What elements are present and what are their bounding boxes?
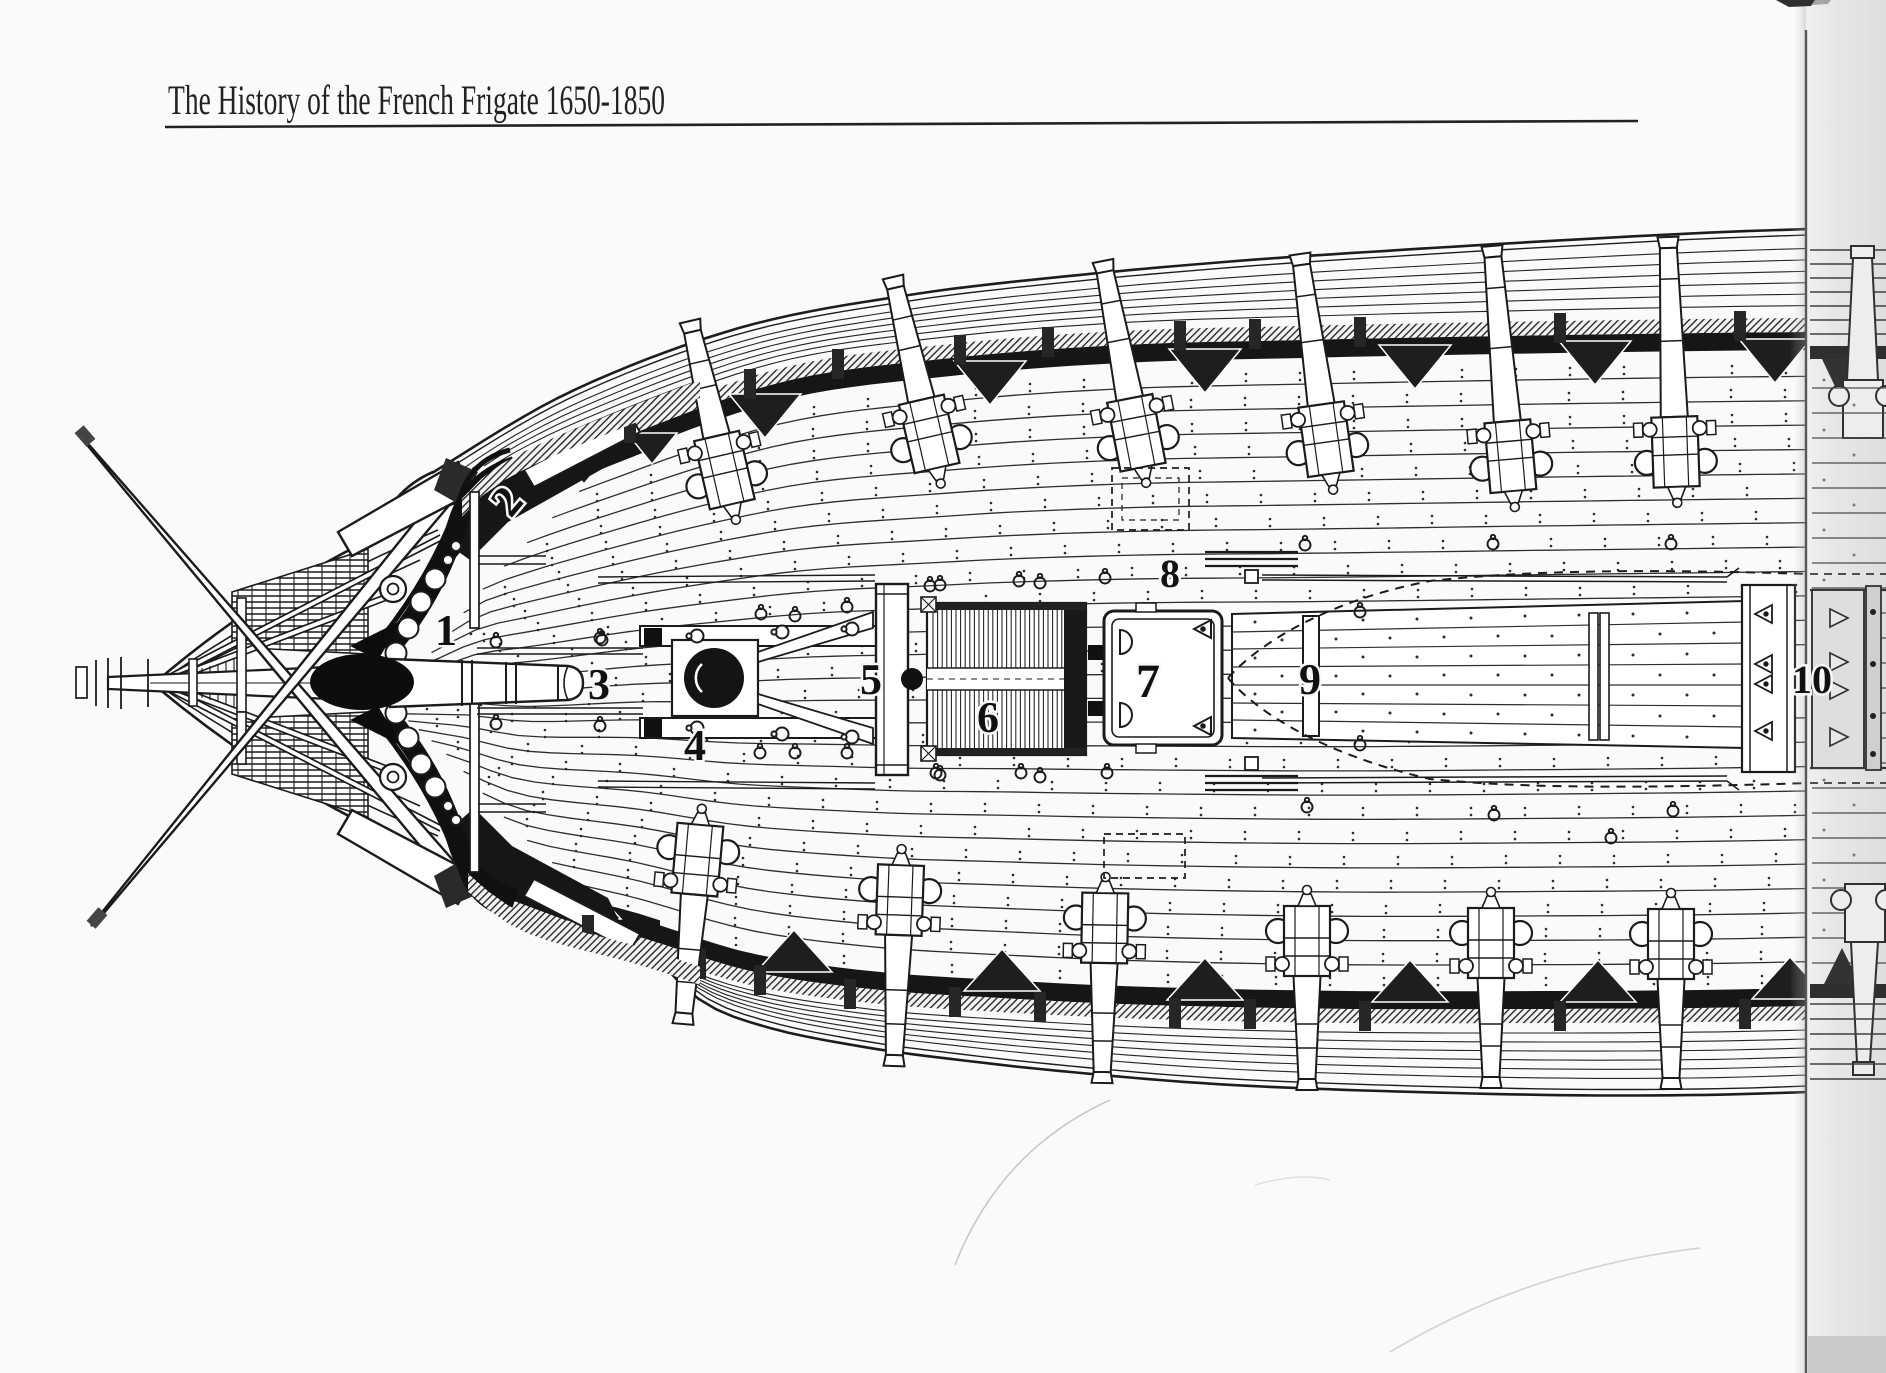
svg-text:8: 8 — [1160, 551, 1180, 596]
svg-text:7: 7 — [1136, 655, 1160, 708]
svg-text:3: 3 — [588, 660, 610, 709]
svg-text:4: 4 — [684, 721, 706, 770]
svg-text:6: 6 — [977, 693, 999, 742]
svg-text:1: 1 — [435, 606, 457, 655]
svg-text:10: 10 — [1792, 657, 1832, 702]
svg-text:The History of the French Frig: The History of the French Frigate 1650-1… — [168, 78, 665, 124]
svg-text:5: 5 — [860, 655, 882, 704]
svg-text:9: 9 — [1299, 655, 1321, 704]
